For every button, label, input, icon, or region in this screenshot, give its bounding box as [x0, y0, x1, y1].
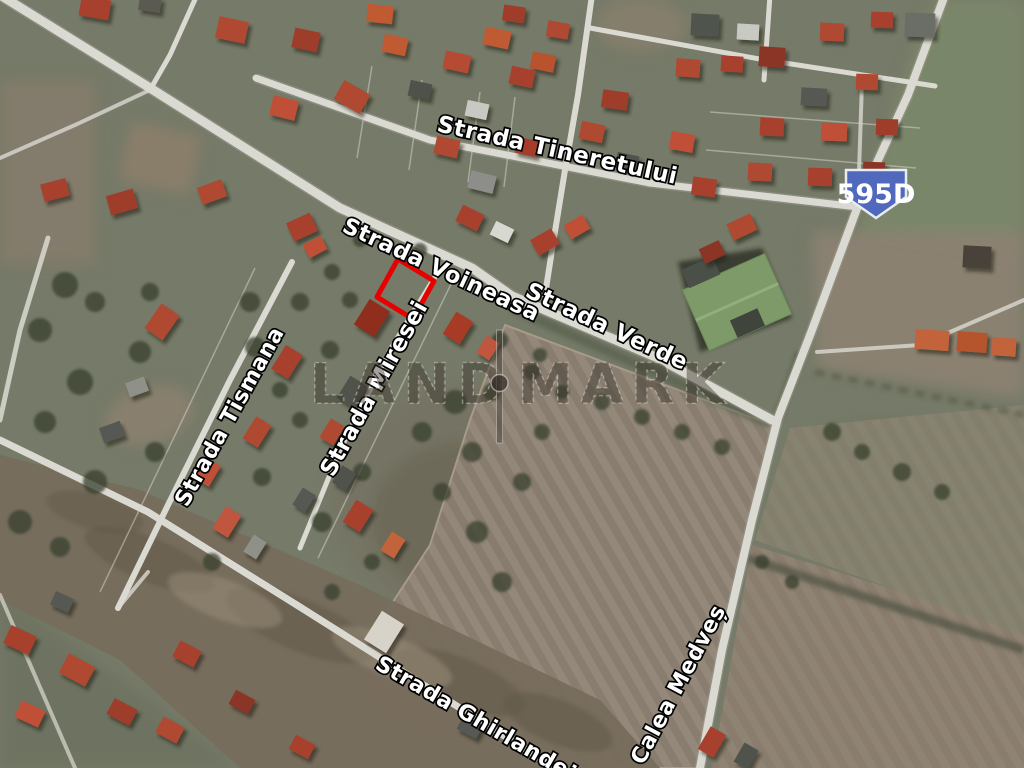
bush: [292, 412, 308, 428]
bush: [141, 283, 159, 301]
bush: [52, 272, 78, 298]
bush: [513, 473, 531, 491]
watermark-divider-dot: [491, 375, 508, 392]
house-roof: [720, 55, 743, 72]
house-roof: [905, 12, 936, 37]
house-roof: [737, 23, 760, 40]
bush: [492, 572, 512, 592]
bush: [324, 584, 340, 600]
bush: [67, 369, 93, 395]
bush: [755, 555, 769, 569]
house-roof: [856, 74, 879, 91]
bush: [324, 264, 340, 280]
house-roof: [675, 58, 700, 78]
bush: [272, 382, 288, 398]
house-roof: [601, 89, 629, 110]
house-roof: [808, 168, 833, 187]
house-roof: [801, 87, 828, 106]
bush: [83, 470, 107, 494]
bush: [8, 510, 32, 534]
bush: [34, 411, 56, 433]
watermark-land: LAND: [310, 352, 511, 416]
bush: [291, 293, 309, 311]
bush: [342, 292, 358, 308]
house-roof: [366, 4, 394, 25]
bush: [364, 554, 380, 570]
house-roof: [956, 331, 987, 353]
bush: [28, 318, 52, 342]
house-roof: [871, 12, 894, 29]
satellite-map-image: Strada TineretuluiStrada VoineasaStrada …: [0, 0, 1024, 768]
house-roof: [962, 245, 991, 268]
bush: [203, 553, 221, 571]
bush: [50, 537, 70, 557]
house-roof: [821, 123, 848, 142]
watermark-mark: MARK: [518, 352, 732, 416]
house-roof: [758, 46, 785, 68]
bush: [433, 483, 451, 501]
bush: [462, 442, 482, 462]
house-roof: [690, 13, 719, 36]
bush: [893, 463, 911, 481]
bush: [714, 439, 730, 455]
bush: [823, 423, 841, 441]
house-roof: [502, 5, 526, 24]
bush: [934, 484, 950, 500]
house-roof: [760, 117, 785, 136]
house-roof: [991, 337, 1016, 357]
bush: [466, 521, 488, 543]
house-roof: [914, 329, 949, 351]
bush: [785, 575, 799, 589]
bush: [312, 512, 332, 532]
house-roof: [876, 119, 899, 136]
bush: [534, 424, 550, 440]
bush: [85, 292, 105, 312]
bush: [129, 341, 151, 363]
bush: [412, 422, 432, 442]
bush: [353, 463, 371, 481]
bush: [253, 468, 271, 486]
house-roof: [691, 176, 717, 197]
road-badge-label: 595D: [837, 179, 916, 210]
bush: [674, 424, 690, 440]
bush: [240, 292, 260, 312]
bush: [145, 442, 165, 462]
house-roof: [748, 162, 773, 181]
bush: [854, 444, 870, 460]
map-scene: Strada TineretuluiStrada VoineasaStrada …: [0, 0, 1024, 768]
house-roof: [820, 22, 845, 41]
